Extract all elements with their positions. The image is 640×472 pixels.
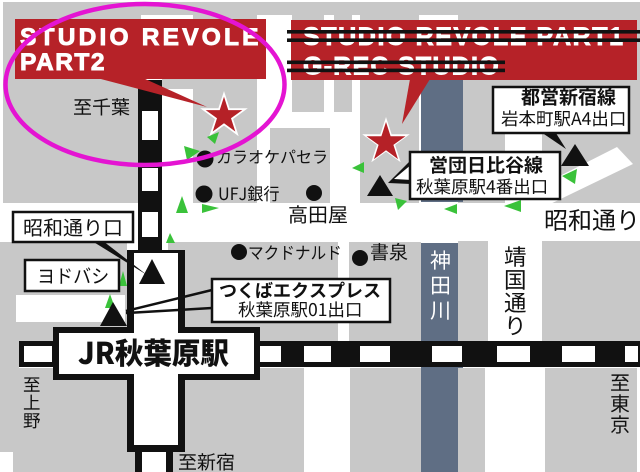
svg-text:G-REC STUDIO: G-REC STUDIO — [303, 53, 500, 81]
svg-text:STUDIO REVOLE PART1: STUDIO REVOLE PART1 — [303, 23, 625, 51]
svg-text:PART2: PART2 — [20, 49, 106, 76]
svg-text:STUDIO REVOLE: STUDIO REVOLE — [20, 24, 262, 51]
